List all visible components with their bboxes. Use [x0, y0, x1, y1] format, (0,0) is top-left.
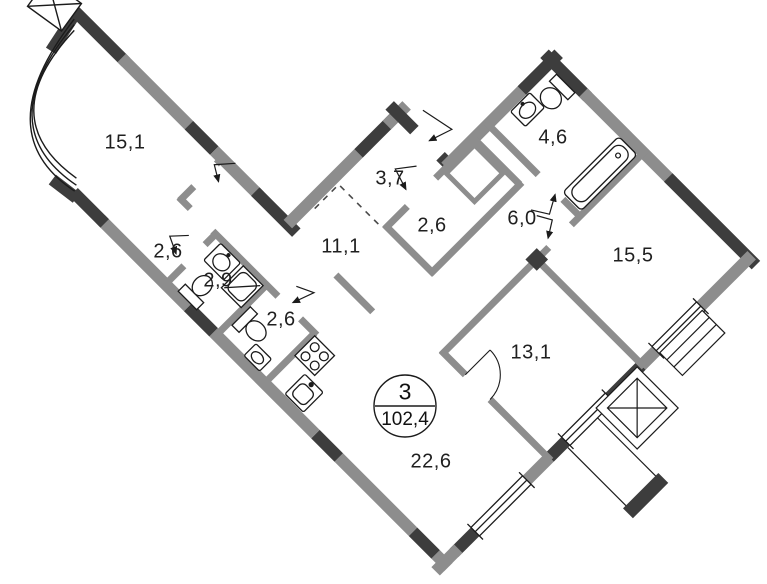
badge-rooms-count: 3: [399, 379, 412, 406]
stove-icon: [295, 336, 335, 376]
room-area-label-bathroom: 2,9: [203, 270, 232, 293]
room-area-label-kitchen-living: 22,6: [411, 451, 452, 474]
room-area-label-corridor: 2,6: [153, 241, 182, 264]
bay-window: [0, 14, 168, 201]
window-icon: [467, 298, 708, 539]
floor-plan: 15,1 2,6 2,9 2,6 11,1 3,7 2,6 6,0 4,6 15…: [0, 0, 767, 584]
room-area-label-bedroom: 15,5: [613, 245, 654, 268]
room-area-label-inner-hall: 6,0: [507, 208, 536, 231]
badge-total-area: 102,4: [381, 409, 429, 431]
balcony-window-unit: [660, 310, 725, 375]
room-area-label-bathroom-2: 4,6: [538, 127, 567, 150]
room-area-label-hallway: 11,1: [321, 236, 360, 259]
room-area-label-living-room: 15,1: [105, 132, 146, 155]
room-area-label-entry-hall: 3,7: [375, 168, 404, 191]
floor-plan-drawing: [0, 0, 767, 584]
room-area-label-wc: 2,6: [266, 309, 295, 332]
door-swing-arc: [465, 350, 514, 399]
exterior-walls: [0, 0, 756, 571]
room-area-label-closet: 2,6: [417, 215, 446, 238]
shaft-x-icon: [596, 367, 678, 449]
room-area-label-bedroom-2: 13,1: [511, 342, 552, 365]
